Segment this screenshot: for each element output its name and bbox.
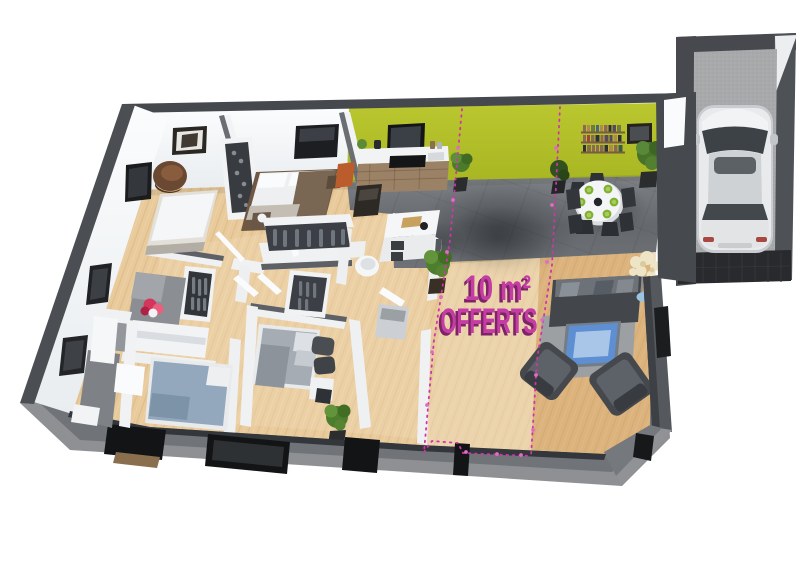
svg-text:OFFERTS: OFFERTS — [441, 301, 538, 341]
